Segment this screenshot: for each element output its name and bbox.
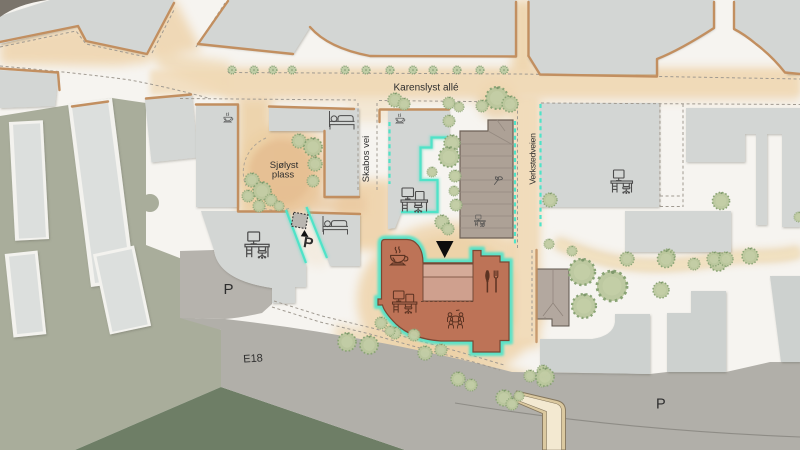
svg-text:Verkstedveien: Verkstedveien xyxy=(528,133,538,185)
svg-text:E18: E18 xyxy=(243,352,263,365)
svg-text:Skabos vei: Skabos vei xyxy=(361,136,372,182)
svg-text:plass: plass xyxy=(272,170,294,181)
svg-text:Karenslyst allé: Karenslyst allé xyxy=(393,83,458,94)
svg-text:P: P xyxy=(656,397,666,413)
svg-text:P: P xyxy=(224,281,234,298)
